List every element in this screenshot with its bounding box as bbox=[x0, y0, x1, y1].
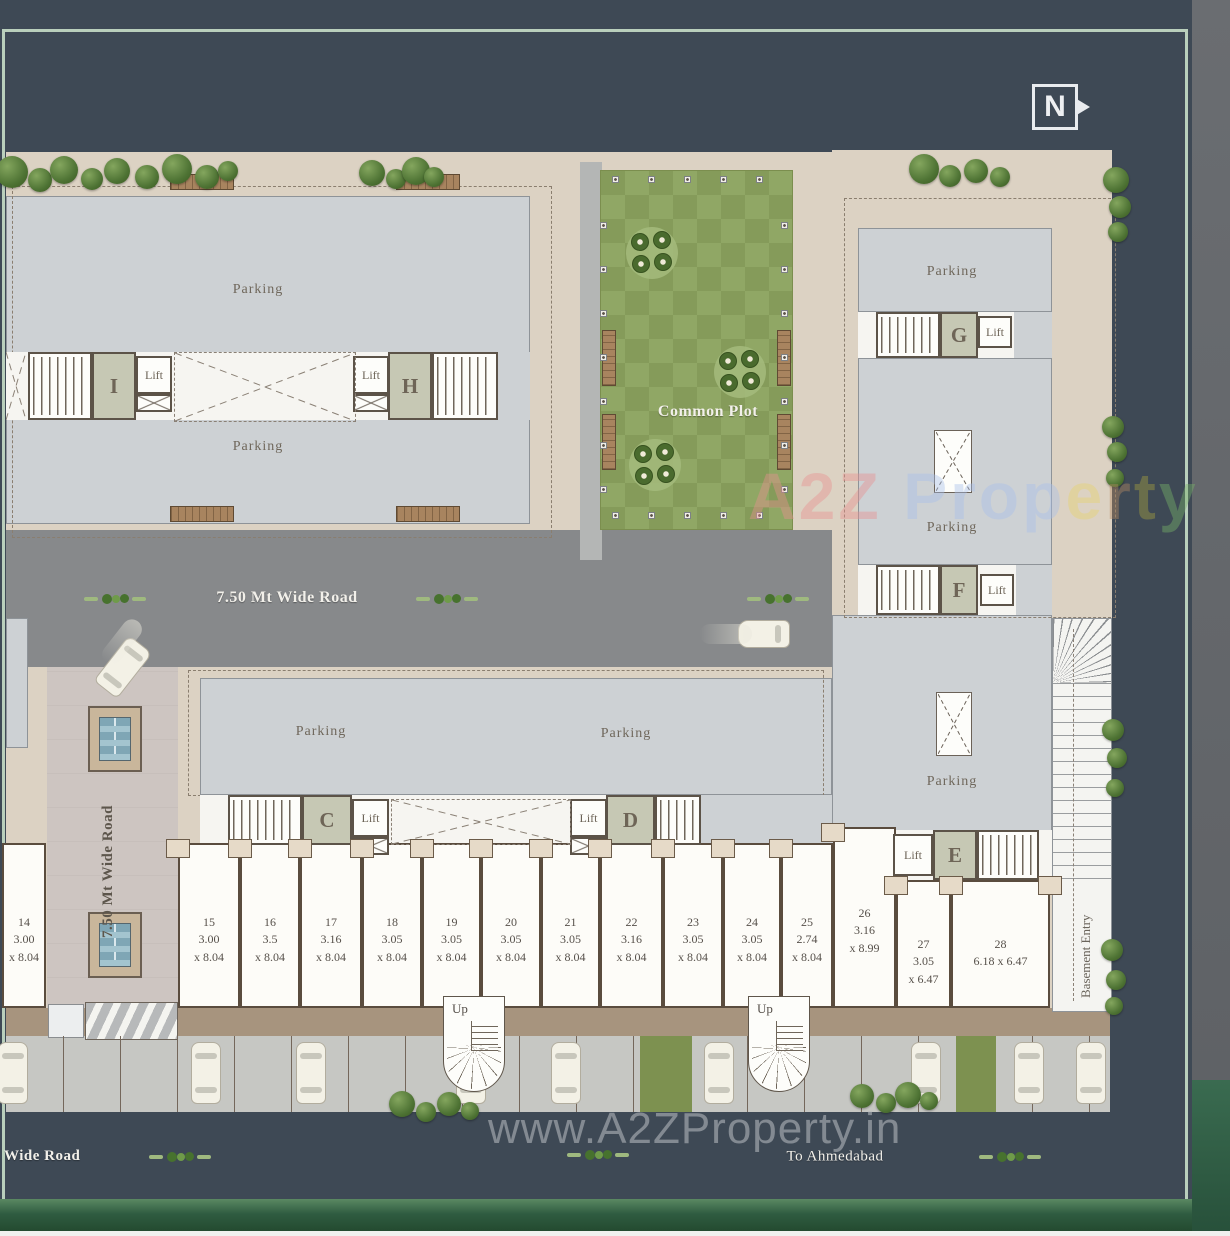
fence-post bbox=[648, 176, 655, 183]
car-parked bbox=[0, 1042, 28, 1104]
basement-entry-label: Basement Entry bbox=[1078, 828, 1094, 998]
hedge-marker bbox=[149, 1152, 211, 1162]
watermark-letter: o bbox=[979, 459, 1022, 533]
outer-right-strip-grass bbox=[1192, 1080, 1230, 1236]
fence-post bbox=[684, 512, 691, 519]
tree-icon bbox=[424, 167, 444, 187]
shop-unit-22: 223.16x 8.04 bbox=[600, 843, 663, 1008]
tree-icon bbox=[389, 1091, 415, 1117]
tree-icon bbox=[135, 165, 159, 189]
stair-treads bbox=[881, 317, 935, 353]
lift-box: Lift bbox=[352, 799, 389, 837]
shop-unit-label: 263.16x 8.99 bbox=[835, 905, 894, 957]
tree-icon bbox=[909, 154, 939, 184]
shop-unit-label: 193.05x 8.04 bbox=[424, 914, 479, 966]
stair-treads bbox=[33, 357, 87, 415]
block-label-G: G bbox=[940, 312, 978, 358]
watermark-letter: P bbox=[903, 459, 950, 533]
lift-box: Lift bbox=[136, 356, 172, 394]
staircase bbox=[228, 795, 302, 845]
lift-box: Lift bbox=[353, 356, 389, 394]
band-g-fill bbox=[1014, 312, 1052, 358]
common-plot-label: Common Plot bbox=[658, 403, 758, 421]
fence-post bbox=[781, 398, 788, 405]
shop-unit-26: 263.16x 8.99 bbox=[833, 827, 896, 1008]
shop-porch bbox=[651, 839, 675, 858]
shop-unit-label: 233.05x 8.04 bbox=[665, 914, 721, 966]
tree-icon bbox=[1108, 222, 1128, 242]
fence-post bbox=[720, 512, 727, 519]
shop-unit-14: 143.00x 8.04 bbox=[2, 843, 46, 1008]
fence-post bbox=[756, 176, 763, 183]
lift-box: Lift bbox=[893, 834, 933, 876]
spiral-fan bbox=[447, 1045, 501, 1089]
shop-porch bbox=[711, 839, 735, 858]
band-top-left-fill bbox=[498, 352, 530, 420]
fence-post bbox=[781, 442, 788, 449]
watermark-letter: r bbox=[950, 459, 979, 533]
stair-treads bbox=[233, 800, 297, 840]
fence-post bbox=[781, 266, 788, 273]
hedge-marker bbox=[416, 594, 478, 604]
fence-post bbox=[600, 486, 607, 493]
garden-tree-icon bbox=[635, 467, 653, 485]
tree-icon bbox=[81, 168, 103, 190]
shop-porch bbox=[769, 839, 793, 858]
shop-unit-15: 153.00x 8.04 bbox=[178, 843, 240, 1008]
hedge-marker bbox=[979, 1152, 1041, 1162]
stall-landscaped bbox=[956, 1036, 996, 1112]
shop-porch bbox=[350, 839, 374, 858]
shop-unit-20: 203.05x 8.04 bbox=[481, 843, 541, 1008]
watermark-letter: p bbox=[1022, 459, 1065, 533]
shop-unit-label: 173.16x 8.04 bbox=[302, 914, 360, 966]
stall-divider bbox=[519, 1036, 520, 1112]
garden-tree-icon bbox=[653, 231, 671, 249]
lift-shaft-x-box bbox=[136, 394, 172, 412]
garden-tree-icon bbox=[720, 374, 738, 392]
ramp-fan bbox=[1053, 619, 1111, 683]
shop-porch bbox=[166, 839, 190, 858]
shop-unit-label: 143.00x 8.04 bbox=[4, 914, 44, 966]
block-label-I: I bbox=[92, 352, 136, 420]
corridor-x bbox=[6, 352, 26, 420]
shop-unit-label: 243.05x 8.04 bbox=[725, 914, 779, 966]
outer-right-strip-top bbox=[1192, 0, 1230, 1080]
tree-icon bbox=[104, 158, 130, 184]
shop-unit-label: 252.74x 8.04 bbox=[783, 914, 831, 966]
block-label-F: F bbox=[940, 565, 978, 615]
fence-post bbox=[600, 310, 607, 317]
tree-icon bbox=[416, 1102, 436, 1122]
watermark-letter: A bbox=[748, 459, 799, 533]
fence-post bbox=[600, 354, 607, 361]
north-label: N bbox=[1044, 90, 1066, 124]
fence-post bbox=[781, 354, 788, 361]
shop-unit-label: 153.00x 8.04 bbox=[180, 914, 238, 966]
fence-post bbox=[781, 310, 788, 317]
fence-post bbox=[612, 176, 619, 183]
tree-icon bbox=[218, 161, 238, 181]
shop-porch bbox=[410, 839, 434, 858]
shop-unit-23: 233.05x 8.04 bbox=[663, 843, 723, 1008]
shop-porch bbox=[588, 839, 612, 858]
shop-porch bbox=[884, 876, 908, 895]
tree-icon bbox=[1101, 939, 1123, 961]
watermark-letter: 2 bbox=[799, 459, 839, 533]
tree-icon bbox=[1103, 167, 1129, 193]
bench bbox=[396, 506, 460, 522]
car-parked bbox=[191, 1042, 221, 1104]
block-label-E: E bbox=[933, 830, 977, 880]
fence-post bbox=[600, 398, 607, 405]
shop-unit-27: 273.05x 6.47 bbox=[896, 880, 951, 1008]
garden-tree-icon bbox=[654, 253, 672, 271]
fence-post bbox=[684, 176, 691, 183]
tree-icon bbox=[1102, 416, 1124, 438]
tree-icon bbox=[195, 165, 219, 189]
crosswalk bbox=[85, 1002, 178, 1040]
shop-porch bbox=[529, 839, 553, 858]
tree-icon bbox=[990, 167, 1010, 187]
stall-divider bbox=[234, 1036, 235, 1112]
tree-icon bbox=[1106, 779, 1124, 797]
watermark-brand: A2Z Property bbox=[748, 458, 1199, 534]
stall-divider bbox=[120, 1036, 121, 1112]
road-vertical-label: 7.50 Mt Wide Road bbox=[100, 758, 117, 938]
spiral-stair-up-2: Up bbox=[748, 996, 810, 1092]
garden-tree-icon bbox=[742, 372, 760, 390]
road-horizontal-label: 7.50 Mt Wide Road bbox=[216, 589, 357, 607]
tree-icon bbox=[359, 160, 385, 186]
parking-label: Parking bbox=[927, 264, 978, 280]
fence-post bbox=[600, 266, 607, 273]
stall-divider bbox=[348, 1036, 349, 1112]
block-label-H: H bbox=[388, 352, 432, 420]
parking-label: Parking bbox=[927, 774, 978, 790]
tree-icon bbox=[162, 154, 192, 184]
shop-unit-21: 213.05x 8.04 bbox=[541, 843, 600, 1008]
spiral-stair-up-1: Up bbox=[443, 996, 505, 1092]
corridor-x bbox=[938, 694, 970, 754]
tree-icon bbox=[50, 156, 78, 184]
tree-icon bbox=[920, 1092, 938, 1110]
fence-post bbox=[781, 222, 788, 229]
shop-unit-17: 173.16x 8.04 bbox=[300, 843, 362, 1008]
tree-icon bbox=[437, 1092, 461, 1116]
shop-unit-label: 223.16x 8.04 bbox=[602, 914, 661, 966]
tree-icon bbox=[1102, 719, 1124, 741]
car-parked bbox=[551, 1042, 581, 1104]
fence-post bbox=[600, 442, 607, 449]
shop-unit-label: 213.05x 8.04 bbox=[543, 914, 598, 966]
garden-tree-icon bbox=[719, 352, 737, 370]
building-left-partial bbox=[6, 618, 28, 748]
lift-box: Lift bbox=[570, 799, 607, 837]
shop-porch bbox=[228, 839, 252, 858]
staircase bbox=[432, 352, 498, 420]
ramp-dashed-line bbox=[1073, 629, 1074, 1001]
lift-box: Lift bbox=[978, 316, 1012, 348]
water-feature-pool bbox=[99, 717, 131, 761]
watermark-url: www.A2ZProperty.in bbox=[488, 1104, 901, 1154]
staircase bbox=[28, 352, 92, 420]
tree-icon bbox=[461, 1102, 479, 1120]
tree-icon bbox=[1107, 748, 1127, 768]
shop-unit-28: 286.18 x 6.47 bbox=[951, 880, 1050, 1008]
garden-tree-icon bbox=[657, 465, 675, 483]
fence-post bbox=[600, 222, 607, 229]
band-f-fill bbox=[1016, 565, 1052, 615]
stall-divider bbox=[177, 1036, 178, 1112]
staircase bbox=[655, 795, 701, 845]
up-label: Up bbox=[757, 1001, 773, 1017]
watermark-letter: y bbox=[1159, 459, 1199, 533]
watermark-letter: t bbox=[1134, 459, 1159, 533]
staircase bbox=[977, 830, 1039, 880]
car-motion-streak bbox=[700, 624, 752, 644]
tree-icon bbox=[1105, 997, 1123, 1015]
car-parked bbox=[1076, 1042, 1106, 1104]
shop-unit-label: 163.5x 8.04 bbox=[242, 914, 298, 966]
bench bbox=[170, 506, 234, 522]
garden-tree-icon bbox=[631, 233, 649, 251]
shop-porch bbox=[939, 876, 963, 895]
garden-tree-icon bbox=[741, 350, 759, 368]
boundary-right bbox=[844, 198, 1116, 618]
watermark-letter: Z bbox=[838, 459, 881, 533]
stair-treads bbox=[660, 800, 696, 840]
shop-unit-24: 243.05x 8.04 bbox=[723, 843, 781, 1008]
shop-unit-16: 163.5x 8.04 bbox=[240, 843, 300, 1008]
tree-icon bbox=[939, 165, 961, 187]
staircase bbox=[876, 312, 940, 358]
stair-treads bbox=[881, 570, 935, 610]
stall-landscaped bbox=[640, 1036, 692, 1112]
tree-icon bbox=[964, 159, 988, 183]
shop-porch bbox=[821, 823, 845, 842]
parking-label: Parking bbox=[296, 724, 347, 740]
spiral-fan bbox=[752, 1045, 806, 1089]
common-plot-walkway bbox=[580, 162, 602, 560]
block-label-C: C bbox=[302, 795, 352, 845]
garden-tree-icon bbox=[634, 445, 652, 463]
shop-unit-label: 286.18 x 6.47 bbox=[953, 936, 1048, 971]
block-label-D: D bbox=[606, 795, 655, 845]
shop-unit-18: 183.05x 8.04 bbox=[362, 843, 422, 1008]
tree-icon bbox=[1106, 970, 1126, 990]
stall-divider bbox=[63, 1036, 64, 1112]
boundary-lower-middle bbox=[188, 670, 824, 796]
parking-label: Parking bbox=[233, 282, 284, 298]
staircase bbox=[876, 565, 940, 615]
stair-treads bbox=[437, 357, 493, 415]
band-cd-fill bbox=[700, 795, 832, 845]
garden-tree-icon bbox=[656, 443, 674, 461]
road-bottom-left-label: Wide Road bbox=[4, 1148, 80, 1165]
shop-unit-25: 252.74x 8.04 bbox=[781, 843, 833, 1008]
hedge-marker bbox=[84, 594, 146, 604]
car-parked bbox=[704, 1042, 734, 1104]
shop-porch bbox=[288, 839, 312, 858]
tree-icon bbox=[28, 168, 52, 192]
watermark-letter bbox=[882, 459, 903, 533]
fence-post bbox=[720, 176, 727, 183]
fence-post bbox=[612, 512, 619, 519]
lift-box: Lift bbox=[980, 574, 1014, 606]
watermark-letter: e bbox=[1065, 459, 1105, 533]
car-parked bbox=[1014, 1042, 1044, 1104]
corridor-x bbox=[174, 352, 356, 422]
watermark-letter: r bbox=[1105, 459, 1134, 533]
site-plan: Common Plot Basement Entry Up bbox=[0, 0, 1230, 1236]
car-parked bbox=[296, 1042, 326, 1104]
stall-divider bbox=[633, 1036, 634, 1112]
shop-unit-19: 193.05x 8.04 bbox=[422, 843, 481, 1008]
parking-label: Parking bbox=[601, 726, 652, 742]
parking-label: Parking bbox=[233, 439, 284, 455]
north-arrow-pointer-icon bbox=[1075, 98, 1090, 116]
stair-treads bbox=[982, 835, 1034, 875]
shop-porch bbox=[1038, 876, 1062, 895]
lift-shaft-x-box bbox=[353, 394, 389, 412]
grass-strip bbox=[0, 1199, 1192, 1232]
fence-post bbox=[648, 512, 655, 519]
stall-divider bbox=[291, 1036, 292, 1112]
tree-icon bbox=[1109, 196, 1131, 218]
crosswalk-refuge bbox=[48, 1004, 84, 1038]
up-label: Up bbox=[452, 1001, 468, 1017]
shop-porch bbox=[469, 839, 493, 858]
hedge-marker bbox=[747, 594, 809, 604]
garden-tree-icon bbox=[632, 255, 650, 273]
shop-unit-label: 273.05x 6.47 bbox=[898, 936, 949, 988]
north-arrow: N bbox=[1032, 84, 1078, 130]
shop-unit-label: 203.05x 8.04 bbox=[483, 914, 539, 966]
shop-unit-label: 183.05x 8.04 bbox=[364, 914, 420, 966]
bottom-white-strip bbox=[0, 1231, 1230, 1236]
